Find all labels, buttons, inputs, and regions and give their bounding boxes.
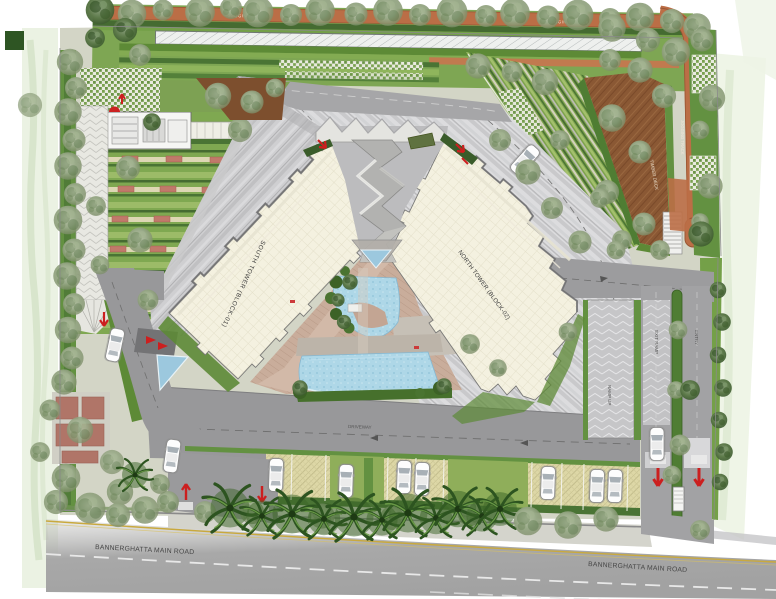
svg-text:ENTRY: ENTRY: [694, 330, 699, 345]
svg-text:JOGGING TRACK: JOGGING TRACK: [680, 120, 685, 155]
svg-text:EXIT RAMP: EXIT RAMP: [654, 330, 659, 354]
svg-text:RAMP UP: RAMP UP: [607, 385, 612, 405]
svg-text:DRIVEWAY: DRIVEWAY: [348, 424, 372, 430]
